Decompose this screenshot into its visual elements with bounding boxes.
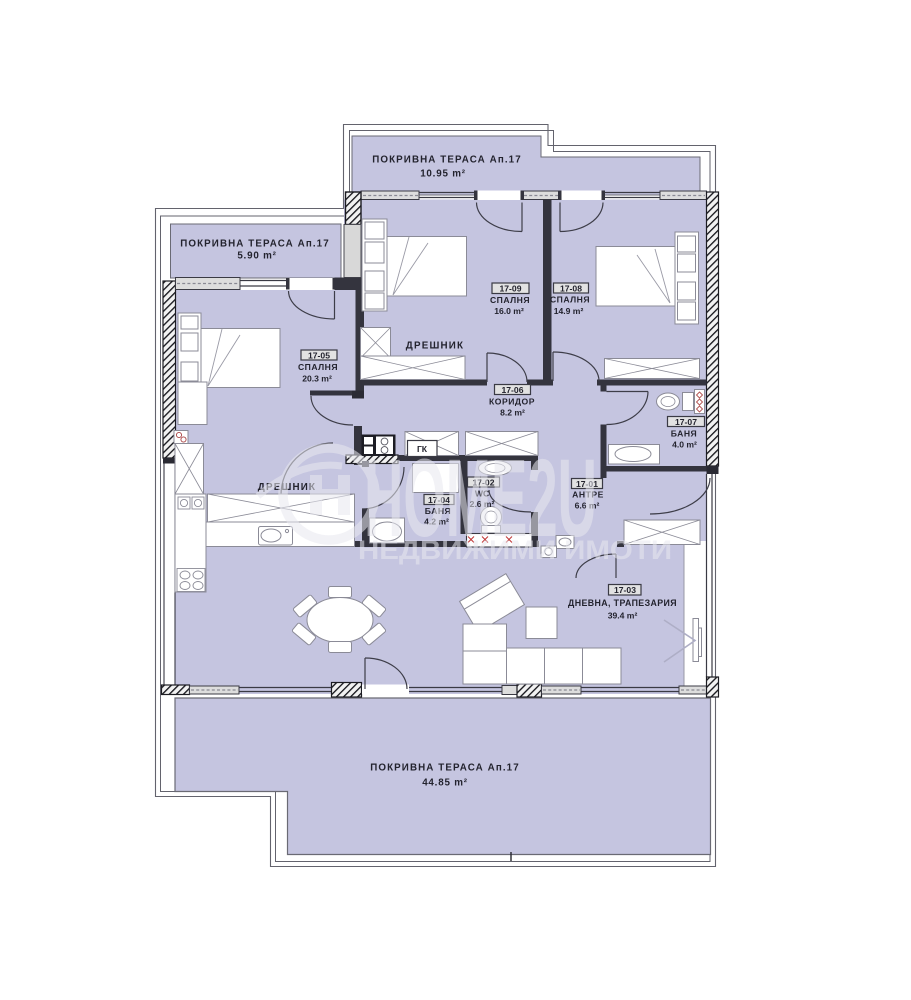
svg-text:ДНЕВНА, ТРАПЕЗАРИЯ: ДНЕВНА, ТРАПЕЗАРИЯ: [568, 598, 677, 608]
svg-text:СПАЛНЯ: СПАЛНЯ: [550, 295, 590, 305]
svg-text:39.4 m²: 39.4 m²: [608, 611, 638, 621]
svg-text:17-05: 17-05: [308, 351, 330, 361]
svg-text:17-09: 17-09: [500, 284, 522, 294]
svg-text:10.95 m²: 10.95 m²: [420, 169, 466, 180]
svg-text:ПОКРИВНА ТЕРАСА Ап.17: ПОКРИВНА ТЕРАСА Ап.17: [370, 763, 520, 774]
svg-text:5.90 m²: 5.90 m²: [237, 251, 276, 262]
svg-text:4.0 m²: 4.0 m²: [672, 440, 697, 450]
svg-text:ДРЕШНИК: ДРЕШНИК: [406, 341, 464, 352]
svg-text:БАНЯ: БАНЯ: [671, 429, 697, 439]
svg-text:16.0 m²: 16.0 m²: [494, 306, 524, 316]
svg-text:17-06: 17-06: [502, 385, 524, 395]
svg-text:ПОКРИВНА ТЕРАСА Ап.17: ПОКРИВНА ТЕРАСА Ап.17: [372, 155, 522, 166]
svg-text:14.9 m²: 14.9 m²: [554, 306, 584, 316]
svg-text:44.85 m²: 44.85 m²: [422, 778, 468, 789]
svg-text:КОРИДОР: КОРИДОР: [489, 397, 535, 407]
svg-text:17-07: 17-07: [675, 417, 697, 427]
svg-text:8.2 m²: 8.2 m²: [500, 408, 525, 418]
svg-text:20.3 m²: 20.3 m²: [302, 374, 332, 384]
svg-text:17-08: 17-08: [560, 284, 582, 294]
svg-text:17-03: 17-03: [614, 585, 636, 595]
svg-text:СПАЛНЯ: СПАЛНЯ: [298, 362, 338, 372]
svg-text:НЕДВИЖИМИ ИМОТИ: НЕДВИЖИМИ ИМОТИ: [358, 535, 672, 565]
svg-text:СПАЛНЯ: СПАЛНЯ: [490, 295, 530, 305]
svg-text:ПОКРИВНА ТЕРАСА Ап.17: ПОКРИВНА ТЕРАСА Ап.17: [180, 239, 330, 250]
